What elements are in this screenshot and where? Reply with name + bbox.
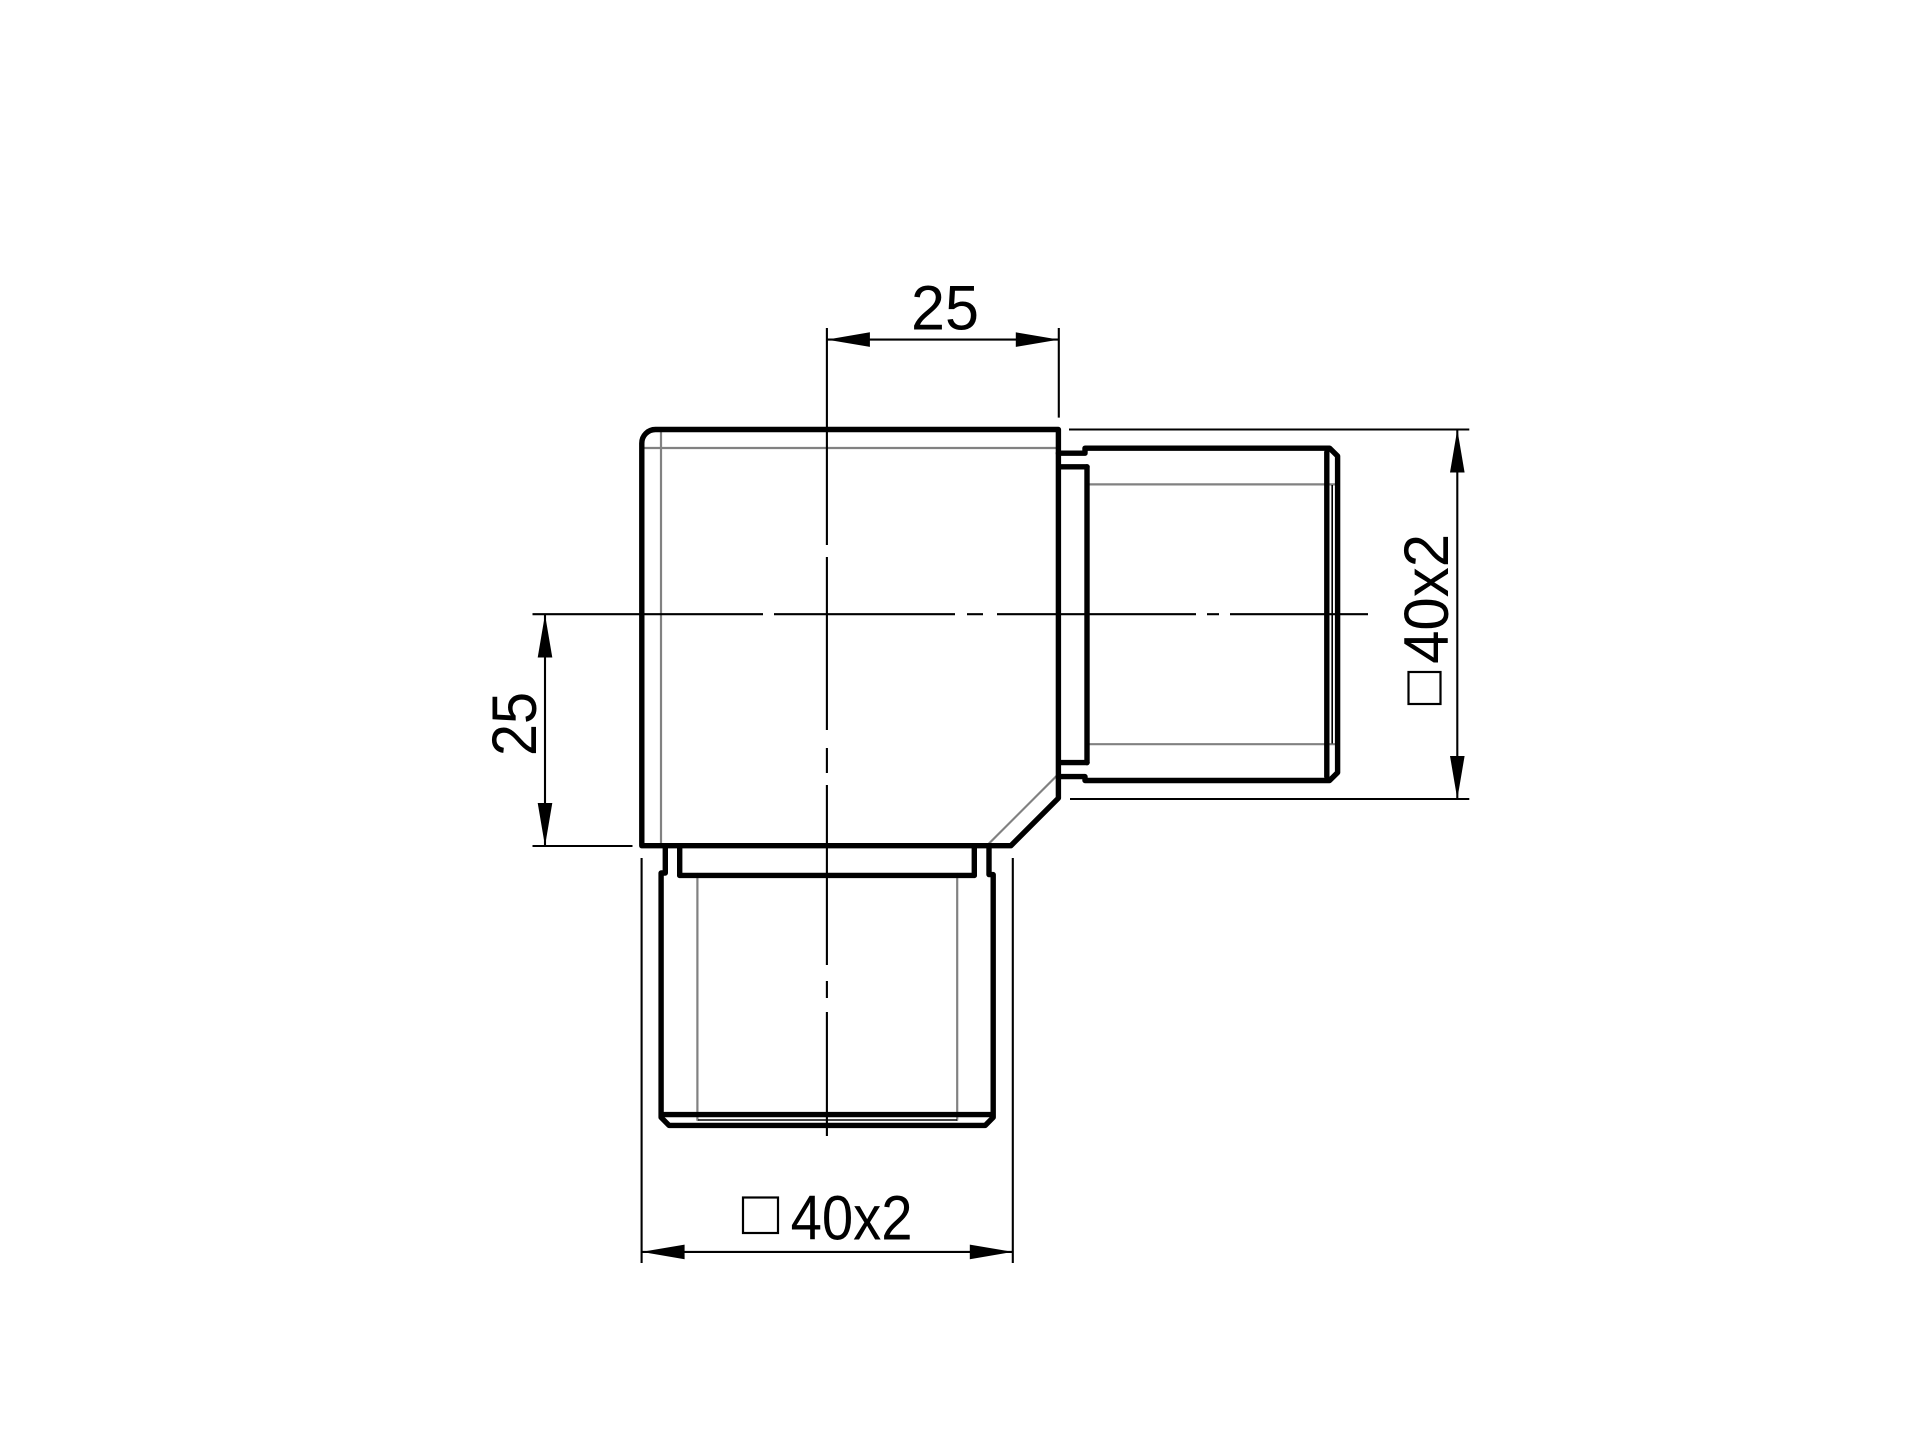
svg-text:40x2: 40x2 xyxy=(1392,534,1462,664)
svg-text:25: 25 xyxy=(911,274,979,344)
svg-text:25: 25 xyxy=(480,692,550,756)
svg-text:40x2: 40x2 xyxy=(791,1184,913,1254)
